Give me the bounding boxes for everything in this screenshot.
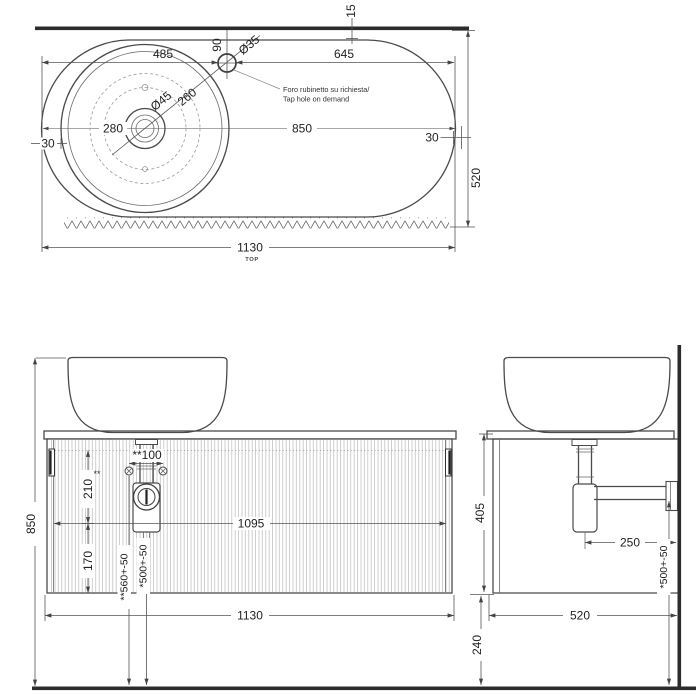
handle-left	[49, 449, 55, 476]
wall-line-side	[678, 345, 682, 690]
handle-right	[446, 449, 452, 476]
mounting-screw-right	[159, 467, 167, 475]
technical-drawing-page: 485 645 90 Ø35 Ø45 260 280 850 30 30 520…	[0, 0, 700, 700]
note-leader	[234, 70, 280, 89]
dim-1130-top-label: 1130	[237, 241, 263, 255]
dim-30-left-label: 30	[41, 137, 55, 151]
dim-90-label: 90	[210, 38, 224, 52]
dim-500-front-label: *500+-50	[138, 544, 150, 587]
vanity-technical-drawing: 485 645 90 Ø35 Ø45 260 280 850 30 30 520…	[0, 0, 700, 700]
dim-485-label: 485	[153, 47, 173, 61]
mounting-screw-left	[125, 467, 133, 475]
dim-dia35-label: Ø35	[236, 32, 263, 57]
trap-side	[572, 440, 678, 550]
front-view: **100 ** 850 210 170 1095 **560+-50 *500…	[24, 358, 456, 687]
basin-side	[504, 358, 670, 433]
view-label-top: TOP	[245, 257, 259, 263]
dim-500-side-label: *500+-50	[658, 545, 670, 588]
fluted-front-edge	[64, 218, 449, 229]
wall-flange	[666, 482, 678, 511]
dim-250-label: 250	[620, 536, 640, 550]
dim-850-front-label: 850	[24, 514, 38, 534]
dim-1130-front-label: 1130	[237, 609, 263, 623]
dim-1095-label: 1095	[238, 517, 265, 531]
tap-note-line2: Tap hole on demand	[283, 95, 349, 104]
dim-850-label: 850	[292, 122, 312, 136]
dim-560-label: **560+-50	[119, 553, 131, 600]
basin-front	[68, 358, 227, 433]
dim-645-label: 645	[334, 47, 354, 61]
dim-100-label: **100	[132, 448, 162, 462]
dim-280-label: 280	[103, 122, 123, 136]
dim-520-label: 520	[469, 168, 483, 188]
top-view: 485 645 90 Ø35 Ø45 260 280 850 30 30 520…	[31, 4, 483, 263]
floor-line	[32, 687, 696, 691]
dim-520-side-label: 520	[570, 609, 590, 623]
dim-15-label: 15	[344, 4, 358, 18]
overflow-notch	[143, 167, 148, 172]
tap-note-line1: Foro rubinetto su richiesta/	[283, 85, 370, 94]
side-view: 405 250 *500+-50 520 240	[470, 358, 678, 686]
dim-210-label: 210	[81, 479, 95, 499]
dim-30-right-label: 30	[425, 131, 439, 145]
wall-line-top	[35, 27, 469, 31]
footnote-marks: **	[93, 469, 101, 479]
dim-240-label: 240	[470, 635, 484, 655]
dim-170-label: 170	[81, 551, 95, 571]
dim-405-label: 405	[473, 503, 487, 523]
